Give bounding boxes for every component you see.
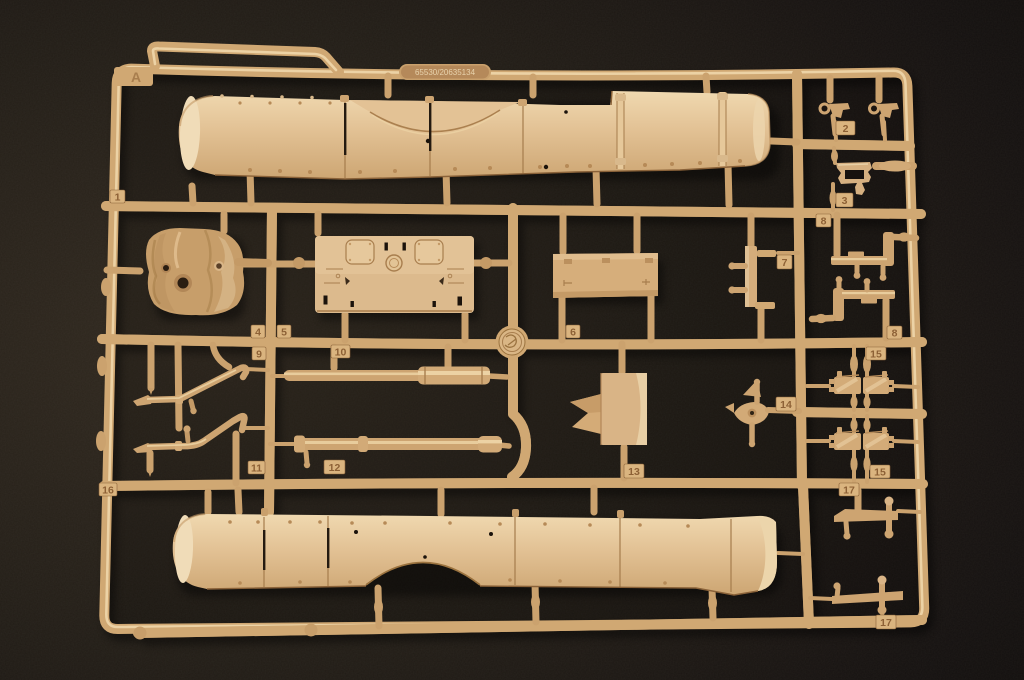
svg-text:10: 10: [335, 347, 347, 359]
svg-text:16: 16: [102, 485, 114, 497]
svg-text:3: 3: [842, 195, 848, 207]
svg-text:17: 17: [880, 617, 892, 629]
svg-text:15: 15: [874, 467, 886, 479]
svg-text:12: 12: [329, 462, 341, 474]
svg-text:11: 11: [251, 463, 262, 475]
svg-text:13: 13: [628, 466, 640, 478]
svg-text:8: 8: [892, 328, 898, 340]
svg-text:6: 6: [570, 327, 576, 339]
svg-text:4: 4: [255, 327, 261, 339]
svg-text:1: 1: [115, 192, 121, 204]
svg-text:8: 8: [821, 216, 827, 228]
svg-text:65530/20635134: 65530/20635134: [415, 68, 476, 77]
svg-text:14: 14: [780, 399, 792, 411]
svg-text:15: 15: [870, 349, 882, 361]
svg-text:A: A: [131, 69, 141, 85]
svg-text:7: 7: [782, 257, 788, 269]
svg-text:9: 9: [256, 349, 262, 361]
svg-text:2: 2: [843, 123, 849, 135]
svg-text:17: 17: [843, 485, 855, 497]
svg-text:5: 5: [281, 327, 287, 339]
